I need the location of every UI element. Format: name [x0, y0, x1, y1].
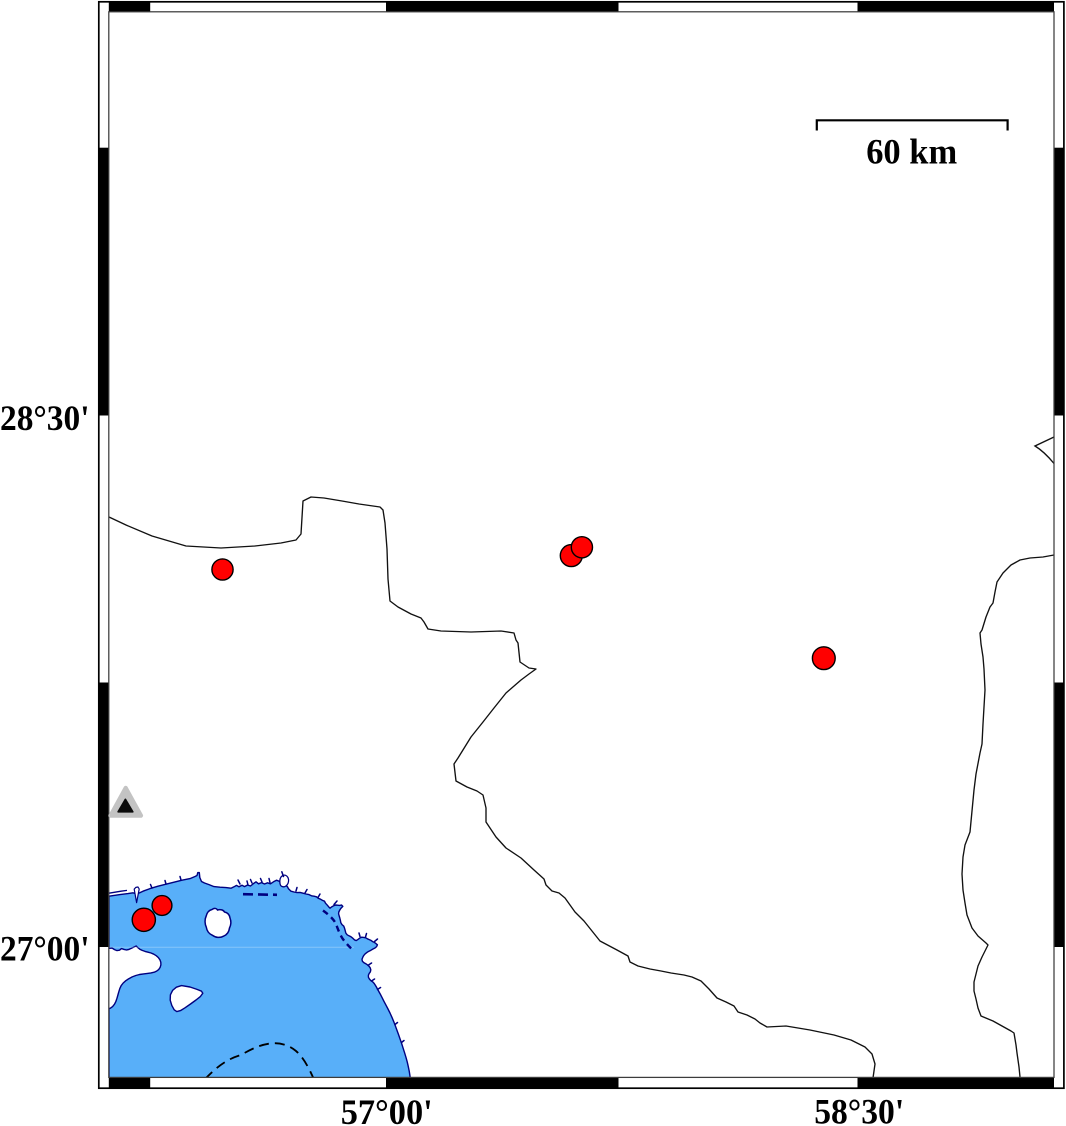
svg-text:27°00': 27°00' [0, 929, 90, 969]
svg-text:57°00': 57°00' [341, 1092, 433, 1126]
svg-text:60 km: 60 km [866, 132, 957, 172]
svg-text:28°30': 28°30' [0, 398, 90, 438]
svg-text:58°30': 58°30' [814, 1092, 904, 1126]
